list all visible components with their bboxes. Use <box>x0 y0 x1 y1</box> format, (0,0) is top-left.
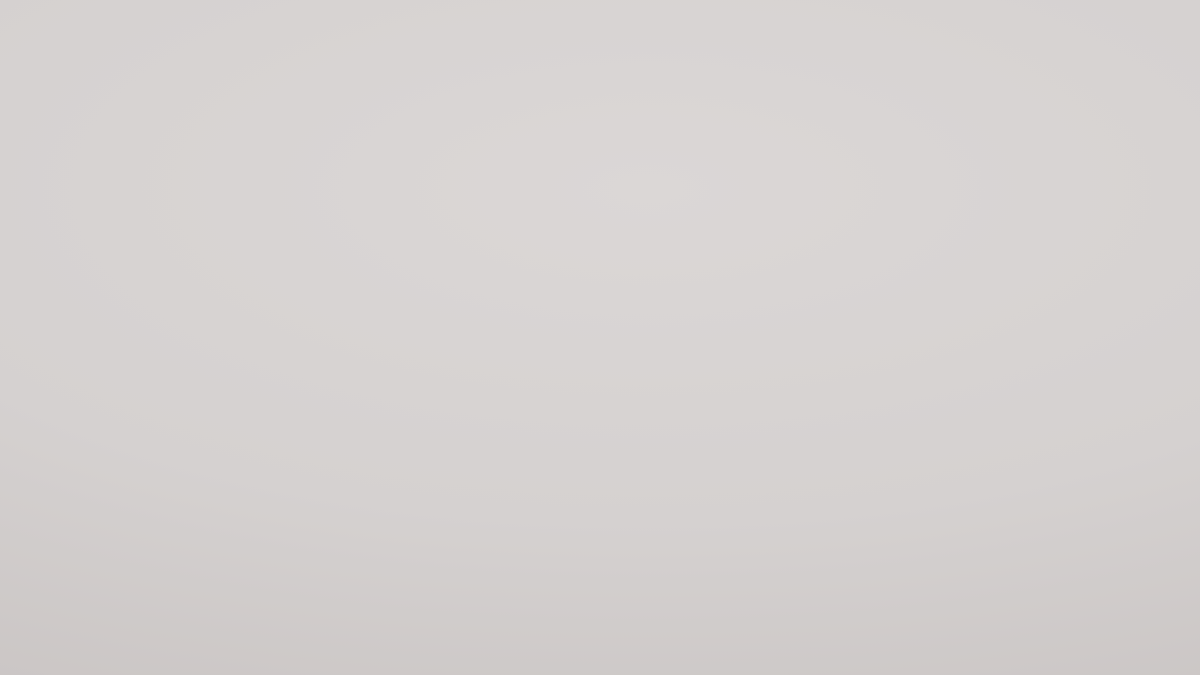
terrain-tile-grid <box>0 0 1200 675</box>
